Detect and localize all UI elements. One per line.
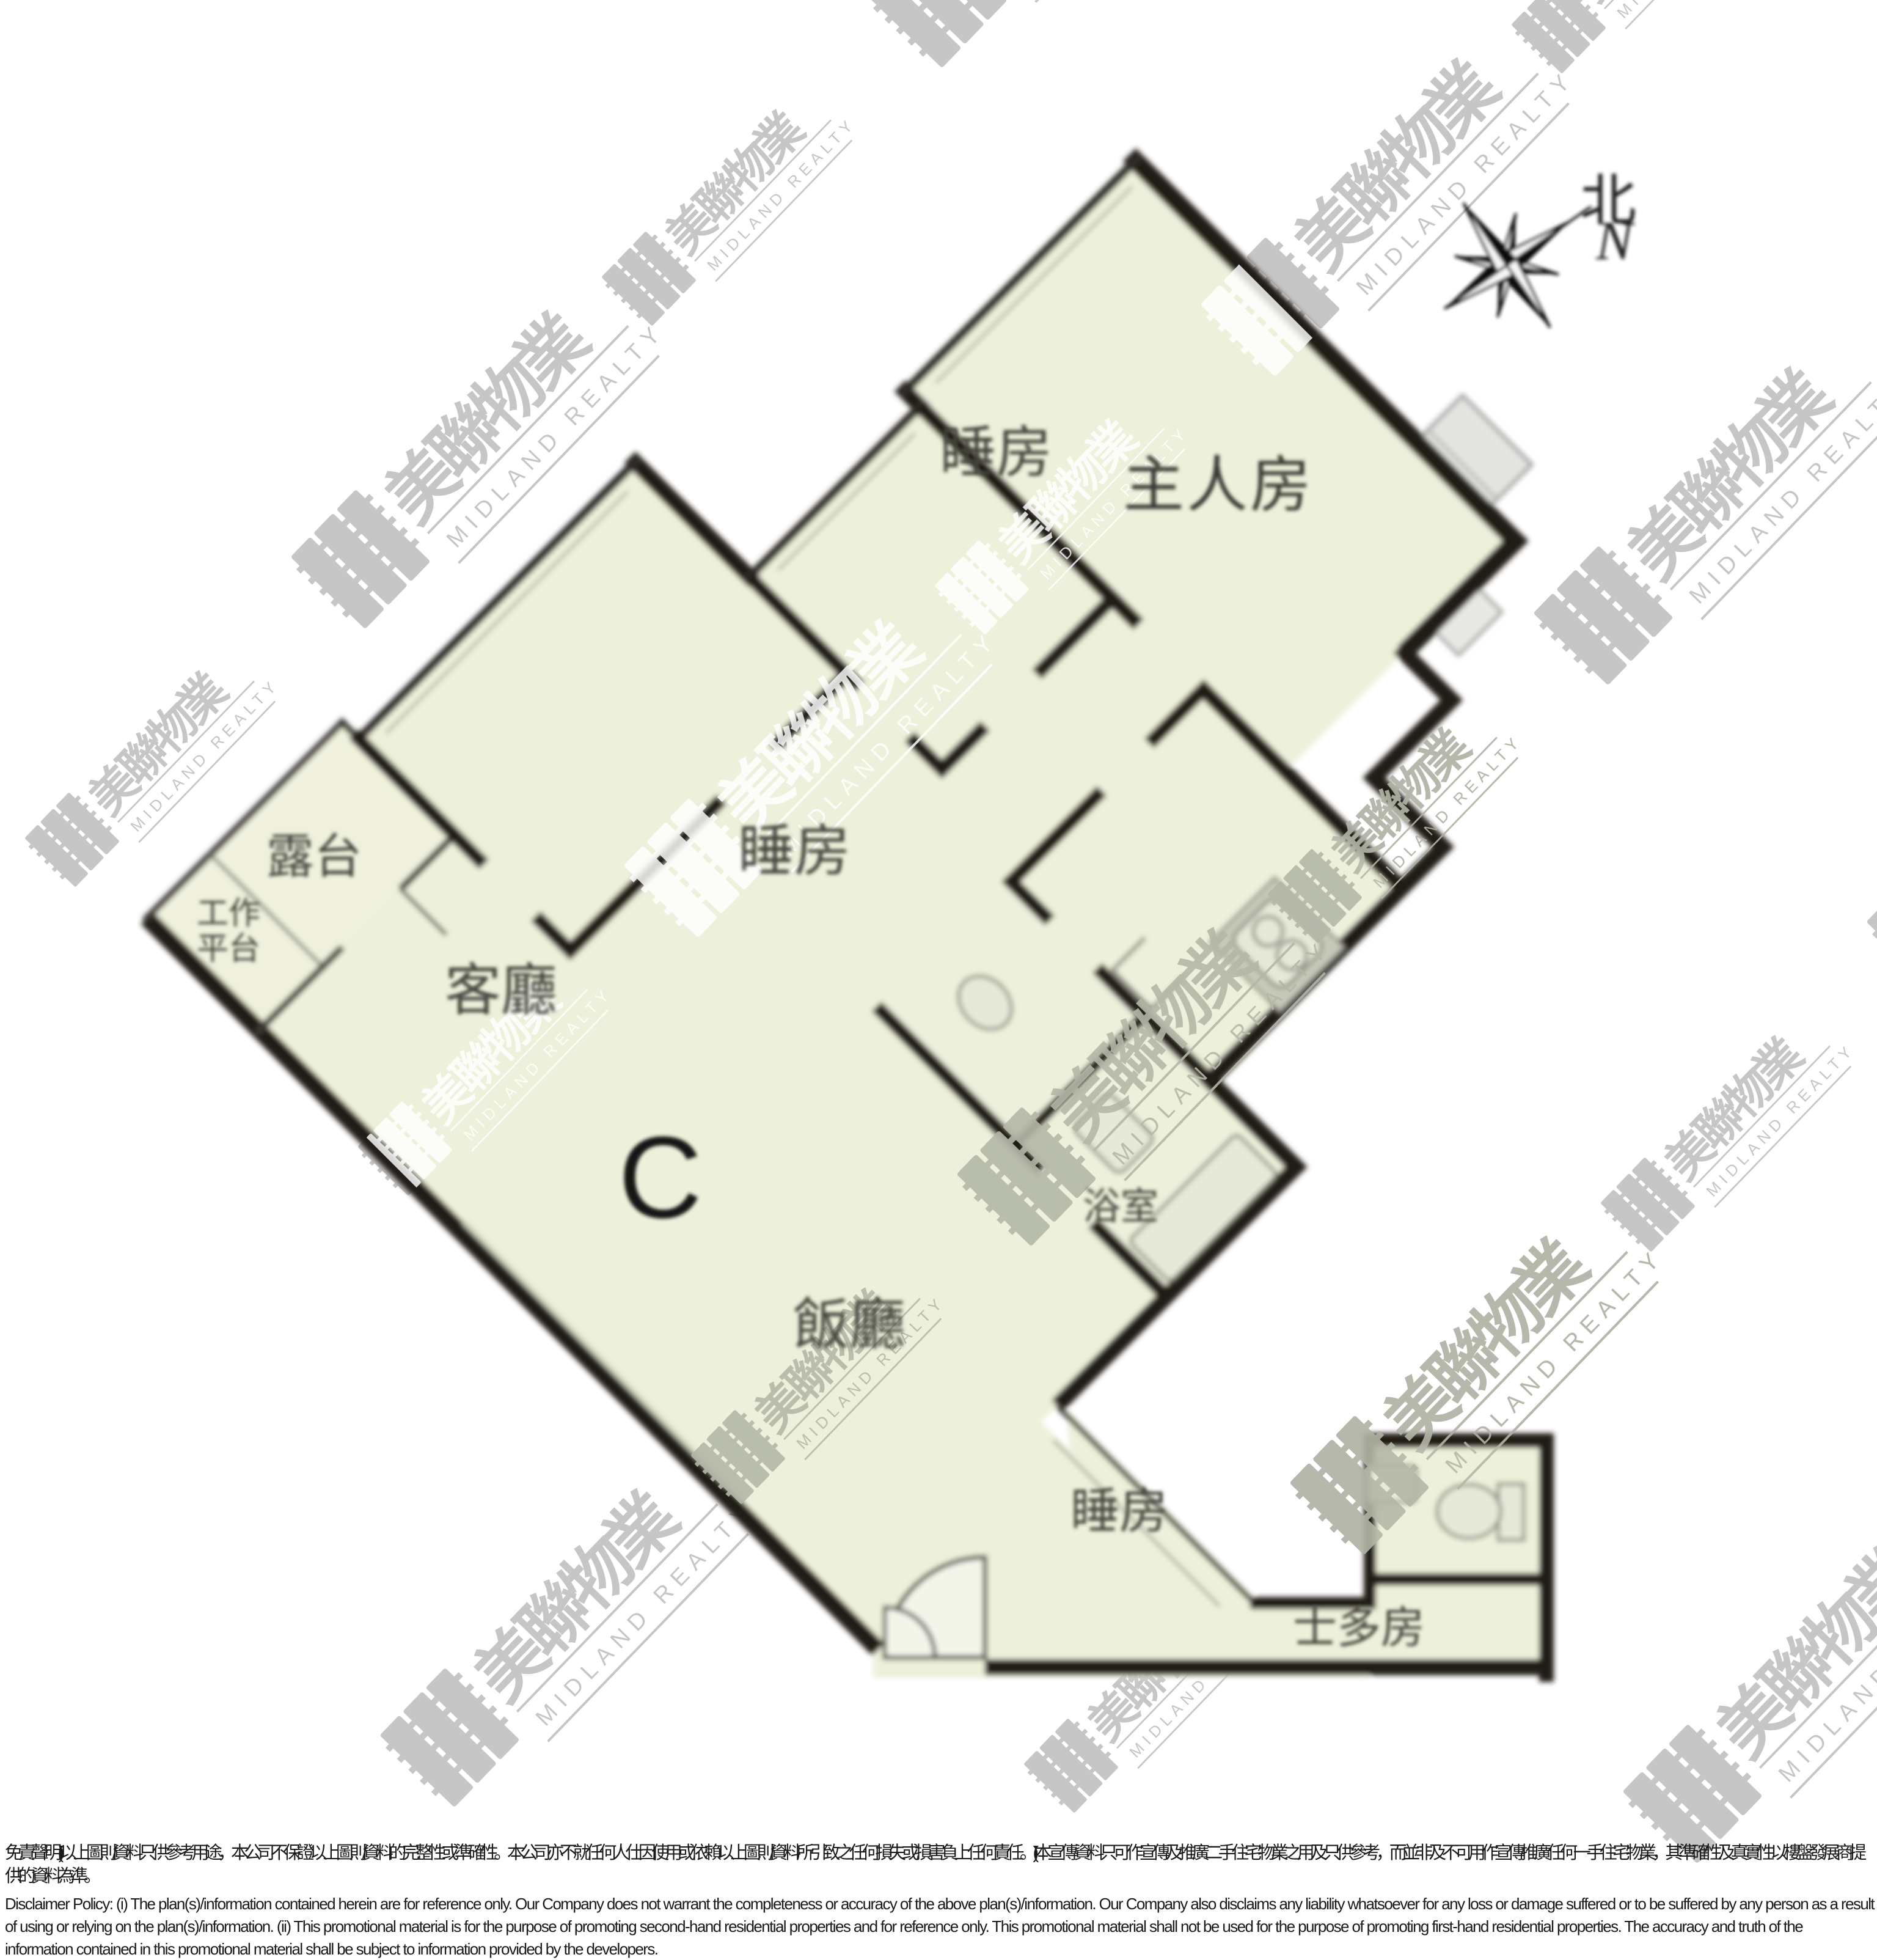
svg-text:客廳: 客廳 bbox=[445, 960, 557, 1022]
svg-text:露台: 露台 bbox=[266, 829, 362, 883]
svg-text:information contained in this: information contained in this promotiona… bbox=[5, 1940, 657, 1958]
svg-text:平台: 平台 bbox=[197, 931, 260, 967]
svg-text:of using or relying on the pla: of using or relying on the plan(s)/infor… bbox=[5, 1917, 1803, 1936]
svg-text:浴室: 浴室 bbox=[1083, 1186, 1158, 1228]
svg-text:供的資料為準。: 供的資料為準。 bbox=[5, 1866, 97, 1886]
svg-text:工作: 工作 bbox=[197, 896, 260, 931]
svg-text:C: C bbox=[618, 1113, 702, 1242]
svg-text:N: N bbox=[1595, 211, 1636, 271]
svg-text:睡房: 睡房 bbox=[1070, 1484, 1168, 1538]
svg-text:免責聲明:(i)以上圖則/資料只供參考用途，本公司不保證以上: 免責聲明:(i)以上圖則/資料只供參考用途，本公司不保證以上圖則/資料的完整性或… bbox=[5, 1843, 1867, 1863]
svg-text:主人房: 主人房 bbox=[1123, 451, 1314, 519]
svg-text:Disclaimer Policy: (i) The pla: Disclaimer Policy: (i) The plan(s)/infor… bbox=[5, 1895, 1875, 1913]
svg-text:飯廳: 飯廳 bbox=[793, 1294, 906, 1356]
svg-text:睡房: 睡房 bbox=[940, 422, 1052, 484]
svg-text:睡房: 睡房 bbox=[738, 820, 851, 883]
svg-text:士多房: 士多房 bbox=[1293, 1604, 1425, 1653]
